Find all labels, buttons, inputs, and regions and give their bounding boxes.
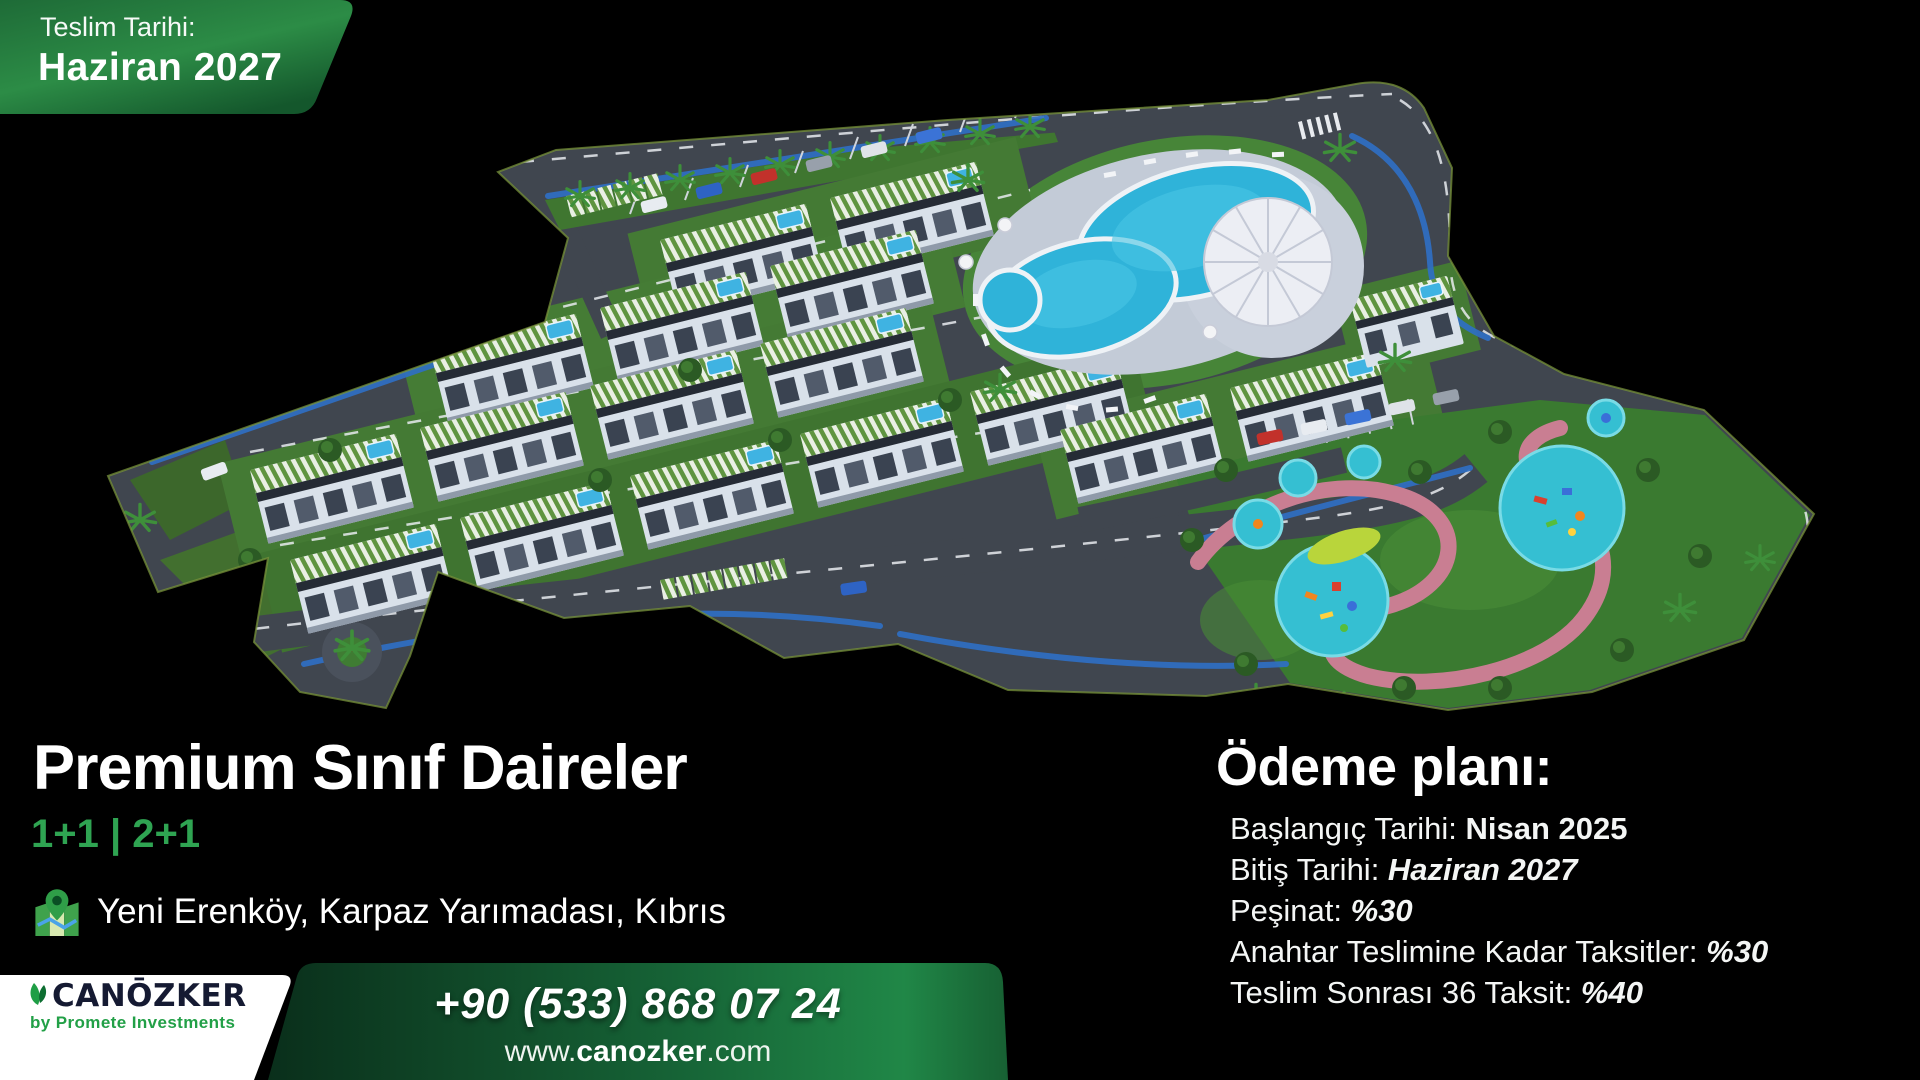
delivery-date-badge: Teslim Tarihi: Haziran 2027	[0, 0, 372, 122]
round-canopy	[1204, 198, 1332, 326]
payment-plan-heading: Ödeme planı:	[1216, 736, 1552, 798]
payment-plan-list: Başlangıç Tarihi: Nisan 2025Bitiş Tarihi…	[1230, 808, 1768, 1013]
brand-tagline: by Promete Investments	[30, 1013, 278, 1033]
flyer-canvas: Teslim Tarihi: Haziran 2027 Premium Sını…	[0, 0, 1920, 1080]
unit-types: 1+1 | 2+1	[31, 812, 200, 857]
website-prefix: www.	[505, 1035, 577, 1068]
badge-value: Haziran 2027	[38, 46, 282, 90]
payment-item: Peşinat: %30	[1230, 890, 1768, 931]
phone-number[interactable]: +90 (533) 868 07 24	[268, 980, 1008, 1029]
payment-item: Teslim Sonrası 36 Taksit: %40	[1230, 972, 1768, 1013]
brand-name: CANŌZKER	[52, 980, 247, 1012]
website-suffix: .com	[706, 1035, 771, 1068]
brand-logo: CANŌZKER by Promete Investments	[28, 980, 278, 1033]
payment-item: Anahtar Teslimine Kadar Taksitler: %30	[1230, 931, 1768, 972]
website-link[interactable]: www.canozker.com	[268, 1035, 1008, 1069]
location-text: Yeni Erenköy, Karpaz Yarımadası, Kıbrıs	[97, 892, 726, 932]
payment-item: Bitiş Tarihi: Haziran 2027	[1230, 849, 1768, 890]
leaf-icon	[28, 980, 50, 1006]
map-pin-icon	[33, 888, 81, 936]
location-row: Yeni Erenköy, Karpaz Yarımadası, Kıbrıs	[33, 888, 726, 936]
badge-label: Teslim Tarihi:	[40, 12, 196, 43]
website-domain: canozker	[576, 1035, 706, 1068]
page-title: Premium Sınıf Daireler	[33, 732, 687, 804]
payment-item: Başlangıç Tarihi: Nisan 2025	[1230, 808, 1768, 849]
